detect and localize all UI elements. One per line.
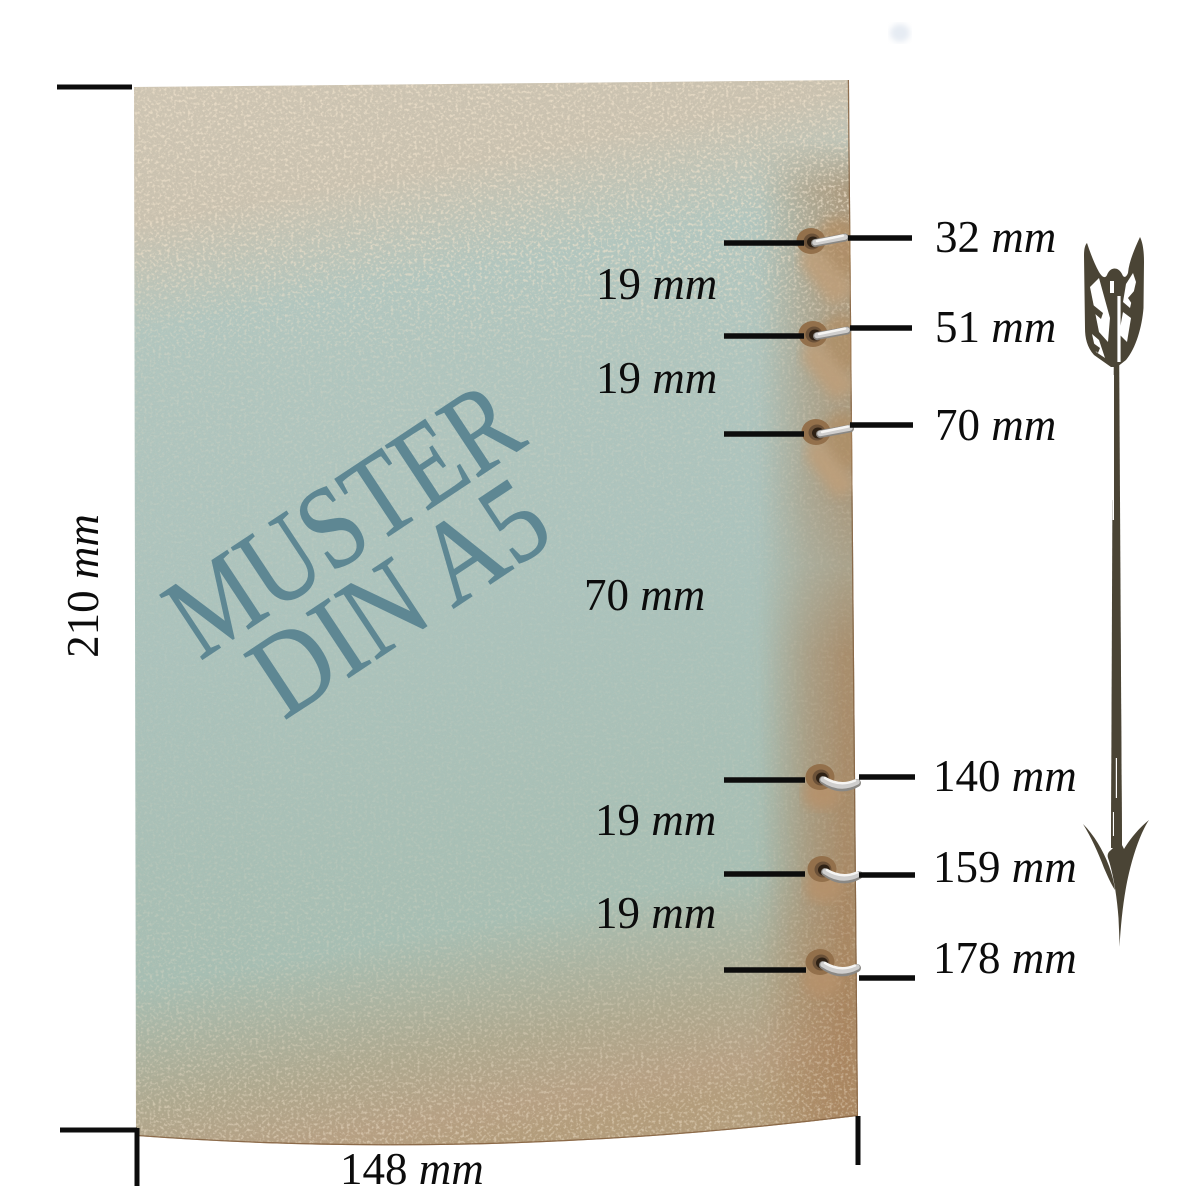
svg-text:19 mm: 19 mm	[596, 353, 717, 403]
svg-text:19 mm: 19 mm	[595, 795, 716, 845]
svg-text:178 mm: 178 mm	[933, 933, 1077, 983]
svg-text:148 mm: 148 mm	[340, 1144, 484, 1194]
svg-text:140 mm: 140 mm	[933, 751, 1077, 801]
svg-text:19 mm: 19 mm	[595, 888, 716, 938]
svg-text:159 mm: 159 mm	[933, 842, 1077, 892]
svg-text:32 mm: 32 mm	[935, 212, 1056, 262]
svg-text:70 mm: 70 mm	[935, 400, 1056, 450]
svg-text:70 mm: 70 mm	[584, 570, 705, 620]
svg-text:51 mm: 51 mm	[935, 302, 1056, 352]
svg-text:19 mm: 19 mm	[596, 259, 717, 309]
svg-text:210 mm: 210 mm	[58, 514, 108, 658]
